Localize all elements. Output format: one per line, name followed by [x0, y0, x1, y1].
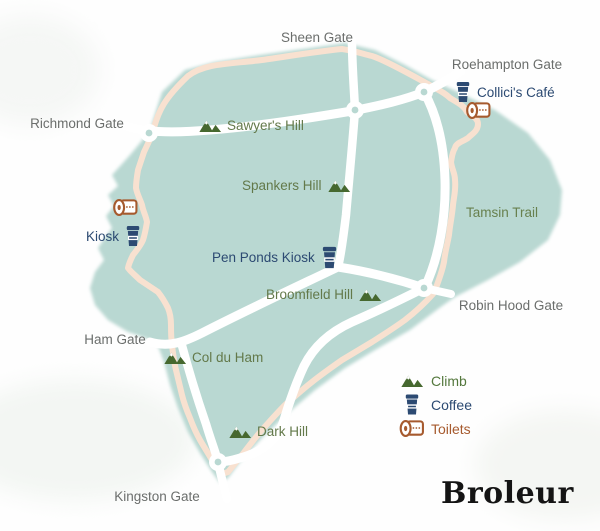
poi-pen-ponds-kiosk: Pen Ponds Kiosk [212, 246, 338, 269]
climb-label: Dark Hill [257, 424, 308, 439]
climb-label: Broomfield Hill [266, 287, 353, 302]
legend-label-coffee: Coffee [431, 397, 472, 413]
climb-label: Sawyer's Hill [227, 118, 304, 133]
climb-icon [228, 425, 252, 439]
climb-icon [358, 288, 382, 302]
climb-label: Col du Ham [192, 350, 263, 365]
climb-label: Spankers Hill [242, 178, 322, 193]
climb-broomfield-hill: Broomfield Hill [266, 287, 382, 302]
climb-icon [400, 374, 424, 388]
gate-label-roehampton: Roehampton Gate [452, 57, 562, 72]
legend-row-coffee: Coffee [398, 394, 472, 415]
roundabout-robin-hood [415, 279, 433, 297]
climb-icon [198, 119, 222, 133]
legend-label-climb: Climb [431, 373, 467, 389]
roundabout-kingston [209, 453, 227, 471]
gate-label-richmond: Richmond Gate [30, 116, 124, 131]
climb-col-du-ham: Col du Ham [163, 350, 263, 365]
climb-icon [163, 351, 187, 365]
climb-sawyers-hill: Sawyer's Hill [198, 118, 304, 133]
gate-label-kingston: Kingston Gate [114, 489, 200, 504]
legend-label-toilets: Toilets [431, 421, 471, 437]
gate-label-robin-hood: Robin Hood Gate [459, 298, 563, 313]
poi-collicis-cafe: Collici's Café [455, 81, 555, 103]
poi-label: Kiosk [86, 229, 119, 244]
poi-label: Collici's Café [477, 85, 555, 100]
poi-kiosk: Kiosk [86, 225, 141, 247]
brand-logo: Broleur [441, 476, 574, 511]
climb-icon [327, 179, 351, 193]
coffee-icon [404, 393, 420, 416]
toilets-icon [466, 101, 491, 120]
gate-label-sheen: Sheen Gate [281, 30, 353, 45]
legend-row-toilets: Toilets [398, 418, 472, 439]
coffee-icon [455, 81, 471, 103]
tamsin-trail-label: Tamsin Trail [466, 205, 538, 220]
legend-row-climb: Climb [398, 370, 472, 391]
roundabout-sheen [346, 101, 364, 119]
roundabout-richmond [140, 124, 158, 142]
toilets-icon [399, 419, 425, 438]
poi-label: Pen Ponds Kiosk [212, 250, 315, 265]
roundabout-roehampton [415, 83, 433, 101]
coffee-icon [125, 225, 141, 247]
legend: Climb Coffee Toilets [398, 370, 472, 439]
climb-spankers-hill: Spankers Hill [242, 178, 351, 193]
park-map: Sheen Gate Roehampton Gate Richmond Gate… [0, 0, 600, 531]
toilets-icon [113, 198, 138, 217]
coffee-icon [321, 246, 338, 269]
climb-dark-hill: Dark Hill [228, 424, 308, 439]
gate-label-ham: Ham Gate [84, 332, 146, 347]
